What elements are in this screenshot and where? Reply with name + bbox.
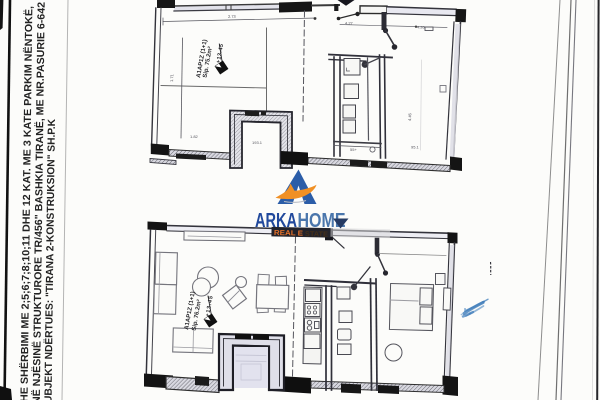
svg-text:1.82: 1.82 — [190, 134, 199, 139]
svg-text:4.20: 4.20 — [417, 25, 426, 30]
svg-text:1.71: 1.71 — [169, 73, 174, 82]
svg-text:2.73: 2.73 — [228, 14, 237, 19]
svg-text:55+: 55+ — [350, 147, 357, 152]
svg-text:193.1: 193.1 — [252, 140, 263, 145]
svg-text:95.1: 95.1 — [411, 145, 420, 150]
svg-text:STATE: STATE — [305, 229, 328, 238]
svg-text:4.46: 4.46 — [407, 112, 412, 121]
svg-text:REAL E: REAL E — [274, 228, 303, 238]
